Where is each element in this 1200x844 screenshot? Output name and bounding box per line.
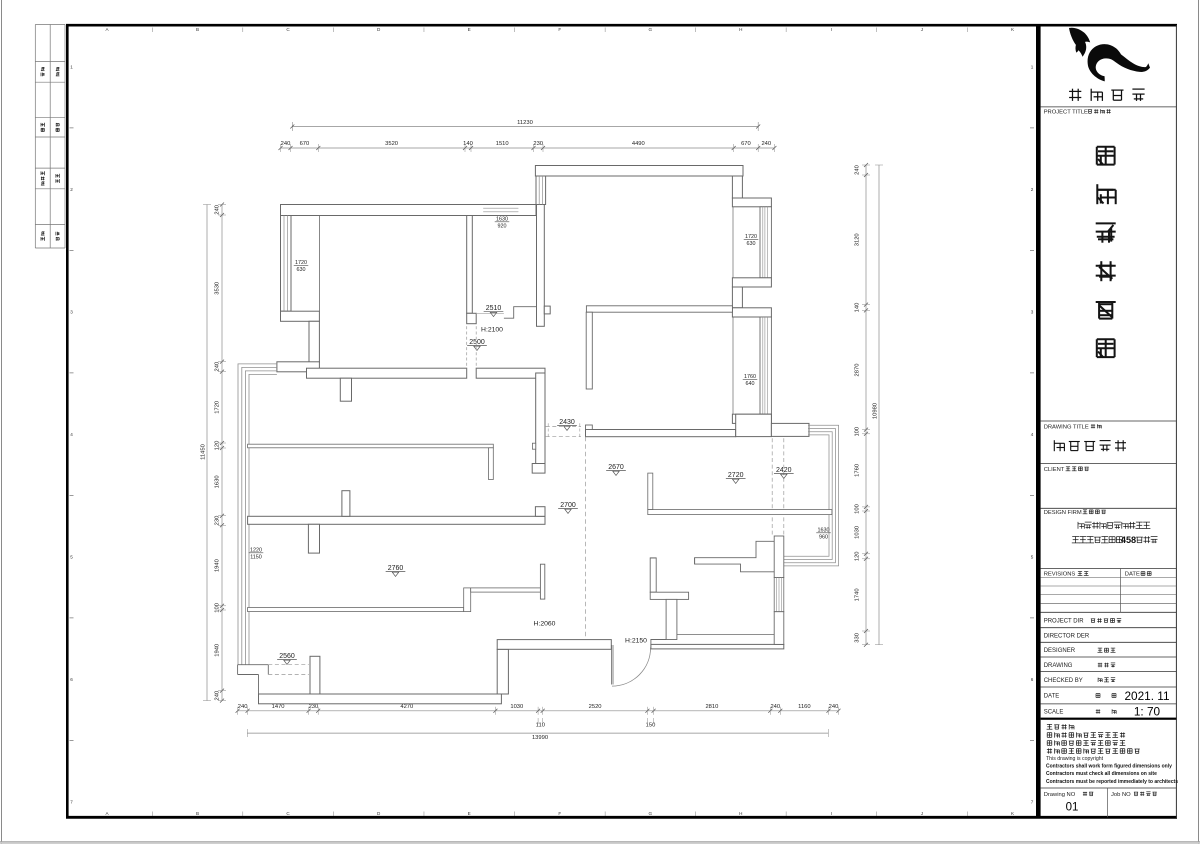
svg-text:1150: 1150 <box>250 555 262 561</box>
svg-text:DATE: DATE <box>1125 572 1140 578</box>
svg-text:|: | <box>967 27 968 32</box>
svg-text:J: J <box>921 27 923 32</box>
svg-text:H: H <box>739 27 742 32</box>
svg-text:1630: 1630 <box>818 527 830 533</box>
svg-text:1740: 1740 <box>855 588 861 601</box>
svg-text:E: E <box>468 811 471 816</box>
svg-text:3120: 3120 <box>855 233 861 246</box>
svg-text:B: B <box>196 27 199 32</box>
svg-text:240: 240 <box>215 691 221 701</box>
svg-text:240: 240 <box>855 165 861 175</box>
svg-text:2: 2 <box>70 187 73 192</box>
svg-text:2720: 2720 <box>728 472 744 479</box>
svg-text:120: 120 <box>215 441 221 451</box>
svg-text:100: 100 <box>855 427 861 437</box>
svg-text:1: 70: 1: 70 <box>1134 704 1161 718</box>
svg-text:960: 960 <box>819 535 828 541</box>
svg-text:1030: 1030 <box>855 526 861 539</box>
svg-text:2510: 2510 <box>486 305 502 312</box>
svg-text:G: G <box>649 811 653 816</box>
svg-text:|: | <box>242 27 243 32</box>
svg-text:11230: 11230 <box>517 120 533 126</box>
svg-text:|: | <box>514 811 515 816</box>
svg-text:1760: 1760 <box>855 464 861 477</box>
svg-text:240: 240 <box>770 704 780 710</box>
svg-text:7: 7 <box>1031 799 1034 804</box>
svg-text:2670: 2670 <box>608 464 624 471</box>
svg-text:|: | <box>695 811 696 816</box>
svg-text:1940: 1940 <box>215 559 221 572</box>
svg-text:240: 240 <box>238 704 248 710</box>
svg-text:330: 330 <box>855 633 861 643</box>
svg-text:630: 630 <box>297 267 306 273</box>
svg-text:DESIGN FIRM: DESIGN FIRM <box>1044 510 1082 516</box>
svg-text:240: 240 <box>215 205 221 215</box>
svg-text:640: 640 <box>746 381 755 387</box>
svg-text:1720: 1720 <box>745 234 757 240</box>
svg-text:F: F <box>558 811 561 816</box>
svg-text:CHECKED BY: CHECKED BY <box>1044 678 1083 684</box>
svg-text:Contractors must be reported i: Contractors must be reported immediately… <box>1046 779 1178 785</box>
svg-text:01: 01 <box>1066 802 1079 814</box>
svg-text:REVISIONS: REVISIONS <box>1044 572 1076 578</box>
svg-text:E: E <box>468 27 471 32</box>
svg-text:DATE: DATE <box>1044 694 1060 700</box>
svg-text:DRAWING TITLE: DRAWING TITLE <box>1044 424 1089 430</box>
svg-text:|: | <box>242 811 243 816</box>
svg-text:|: | <box>876 27 877 32</box>
svg-text:1160: 1160 <box>798 704 810 710</box>
svg-text:|: | <box>423 27 424 32</box>
svg-text:140: 140 <box>855 303 861 313</box>
svg-text:2520: 2520 <box>589 704 602 710</box>
svg-text:4490: 4490 <box>632 141 645 147</box>
svg-text:150: 150 <box>646 723 656 729</box>
svg-text:4: 4 <box>70 432 73 437</box>
svg-text:I: I <box>831 27 832 32</box>
svg-text:H:2150: H:2150 <box>625 638 647 645</box>
svg-text:100: 100 <box>215 603 221 613</box>
svg-text:6: 6 <box>1031 677 1034 682</box>
svg-text:H: H <box>739 811 742 816</box>
svg-text:240: 240 <box>761 141 771 147</box>
svg-text:|: | <box>786 811 787 816</box>
svg-text:|: | <box>967 811 968 816</box>
svg-text:1470: 1470 <box>272 704 285 710</box>
svg-text:3: 3 <box>70 309 73 314</box>
svg-text:Job NO: Job NO <box>1111 792 1131 798</box>
svg-text:|: | <box>152 27 153 32</box>
svg-text:7: 7 <box>70 799 73 804</box>
svg-text:J: J <box>921 811 923 816</box>
svg-text:230: 230 <box>533 141 543 147</box>
svg-text:2560: 2560 <box>279 653 295 660</box>
svg-text:2810: 2810 <box>705 704 718 710</box>
svg-text:This drawing is copyright: This drawing is copyright <box>1046 756 1104 762</box>
svg-text:H:2060: H:2060 <box>534 621 556 628</box>
svg-text:13990: 13990 <box>532 735 548 741</box>
svg-text:1760: 1760 <box>744 374 756 380</box>
svg-text:|: | <box>604 27 605 32</box>
svg-text:|: | <box>786 27 787 32</box>
svg-text:DIRECTOR DER: DIRECTOR DER <box>1044 634 1090 640</box>
svg-text:DRAWING: DRAWING <box>1044 663 1073 669</box>
svg-text:CLIENT: CLIENT <box>1044 467 1065 473</box>
svg-text:Contractors must check all dim: Contractors must check all dimensions on… <box>1046 771 1157 777</box>
svg-text:|: | <box>514 27 515 32</box>
svg-text:458: 458 <box>1121 535 1136 545</box>
svg-text:4: 4 <box>1031 432 1034 437</box>
svg-text:2: 2 <box>1031 187 1034 192</box>
svg-text:2430: 2430 <box>559 419 575 426</box>
svg-text:G: G <box>649 27 653 32</box>
svg-text:|: | <box>333 811 334 816</box>
svg-text:Drawing NO: Drawing NO <box>1044 792 1076 798</box>
svg-text:1940: 1940 <box>215 644 221 657</box>
svg-text:|: | <box>423 811 424 816</box>
svg-text:Contractors shall work form fi: Contractors shall work form figured dime… <box>1046 764 1172 770</box>
svg-text:2870: 2870 <box>855 364 861 377</box>
svg-text:6: 6 <box>70 677 73 682</box>
svg-text:3: 3 <box>1031 309 1034 314</box>
svg-text:240: 240 <box>829 704 839 710</box>
svg-text:110: 110 <box>536 723 545 729</box>
svg-text:11450: 11450 <box>201 444 207 460</box>
svg-text:2021. 11: 2021. 11 <box>1124 689 1169 703</box>
svg-text:I: I <box>831 811 832 816</box>
svg-text:3530: 3530 <box>215 282 221 295</box>
svg-text:230: 230 <box>215 516 221 526</box>
svg-text:1720: 1720 <box>215 401 221 414</box>
svg-text:120: 120 <box>855 551 861 561</box>
svg-text:H:2100: H:2100 <box>481 327 503 334</box>
svg-text:2420: 2420 <box>776 467 792 474</box>
svg-text:2760: 2760 <box>388 565 404 572</box>
svg-text:5: 5 <box>70 554 73 559</box>
svg-text:DESIGNER: DESIGNER <box>1044 648 1076 654</box>
svg-text:1510: 1510 <box>496 141 509 147</box>
svg-text:F: F <box>558 27 561 32</box>
svg-text:240: 240 <box>215 362 221 372</box>
svg-text:|: | <box>604 811 605 816</box>
svg-text:670: 670 <box>741 141 751 147</box>
svg-text:230: 230 <box>309 704 319 710</box>
svg-text:|: | <box>333 27 334 32</box>
svg-text:630: 630 <box>747 241 756 247</box>
svg-text:1: 1 <box>70 64 73 69</box>
svg-text:|: | <box>876 811 877 816</box>
svg-text:10980: 10980 <box>873 403 879 419</box>
svg-text:PROJECT DIR: PROJECT DIR <box>1044 619 1085 625</box>
svg-text:B: B <box>196 811 199 816</box>
svg-text:1: 1 <box>1031 64 1034 69</box>
svg-text:2700: 2700 <box>560 502 576 509</box>
svg-text:1720: 1720 <box>295 260 307 266</box>
svg-text:140: 140 <box>463 141 473 147</box>
svg-text:240: 240 <box>281 141 291 147</box>
svg-text:3520: 3520 <box>385 141 398 147</box>
svg-text:|: | <box>695 27 696 32</box>
svg-text:1030: 1030 <box>510 704 523 710</box>
svg-text:920: 920 <box>498 224 507 230</box>
svg-text:4270: 4270 <box>400 704 413 710</box>
svg-text:2500: 2500 <box>469 339 485 346</box>
svg-text:1630: 1630 <box>215 475 221 488</box>
svg-text:5: 5 <box>1031 554 1034 559</box>
svg-text:PROJECT TITLE: PROJECT TITLE <box>1044 109 1088 115</box>
svg-text:1630: 1630 <box>496 216 508 222</box>
svg-text:670: 670 <box>300 141 310 147</box>
svg-text:100: 100 <box>855 504 861 514</box>
svg-text:|: | <box>152 811 153 816</box>
svg-text:SCALE: SCALE <box>1044 710 1064 716</box>
svg-text:1220: 1220 <box>250 547 262 553</box>
